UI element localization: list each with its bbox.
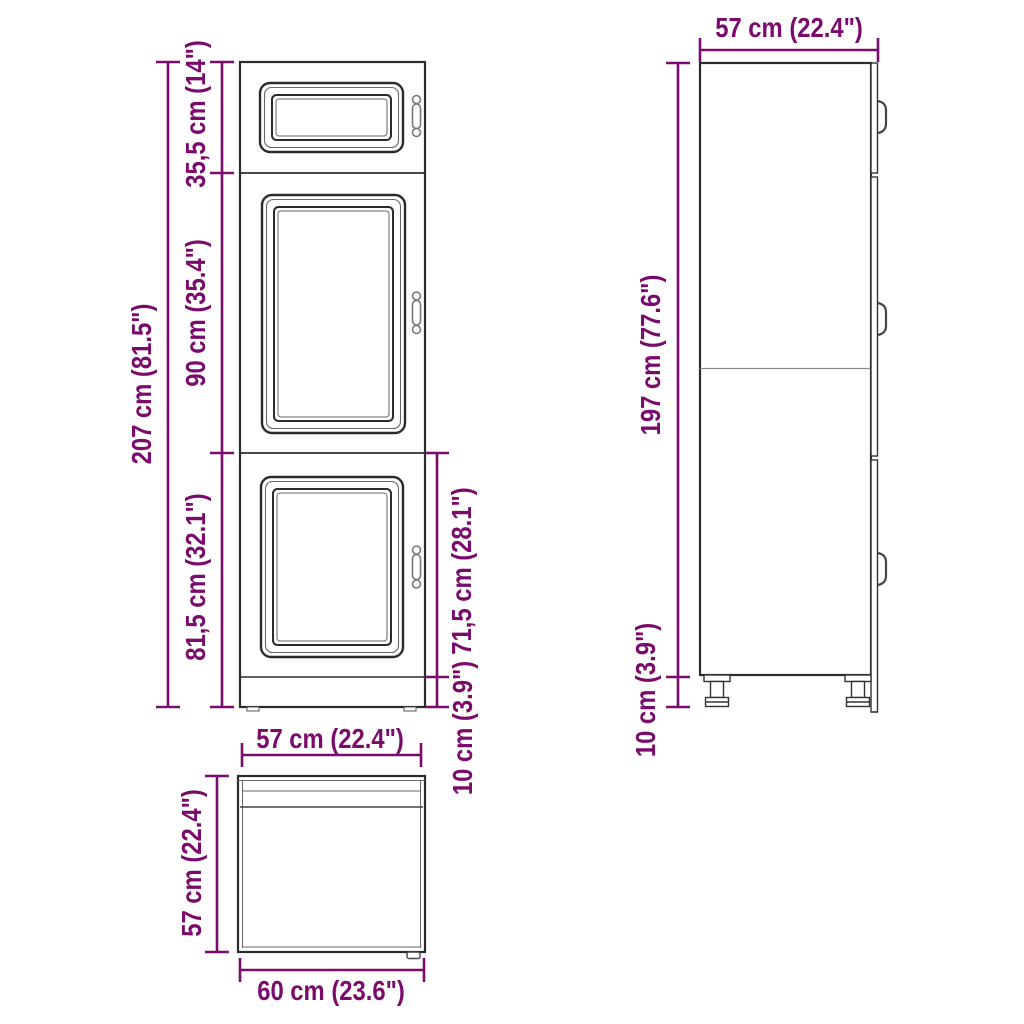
dim-label-front-bottom-section: 81,5 cm (32.1") [182,493,210,660]
dim-side-height-line [666,63,690,707]
dim-label-front-plinth: 10 cm (3.9") [449,661,477,795]
dim-label-front-width: 57 cm (22.4") [256,725,404,753]
front-left-foot [247,707,259,711]
side-back-foot [704,675,730,707]
front-bottom-door-handle [413,546,421,588]
front-cabinet-body [240,62,425,707]
side-door-handles [878,101,887,585]
dim-label-front-top-section: 35,5 cm (14") [182,40,210,188]
front-view-drawing [240,62,425,711]
side-front-foot [845,675,871,707]
dim-top-depth-line [205,776,229,952]
dim-label-top-total-depth: 60 cm (23.6") [257,977,405,1005]
dim-front-sections-line [210,62,234,707]
side-adjustable-feet [704,675,871,707]
side-top-handle [878,101,887,133]
side-middle-handle [878,303,887,335]
dim-front-total-height-line [156,62,180,707]
front-top-door-handle [413,96,421,137]
dimension-diagram: 207 cm (81.5") 35,5 cm (14") 90 cm (35.4… [0,0,1024,1024]
top-view-outline [238,776,425,952]
side-view-drawing [700,63,886,712]
cabinet-line-drawing [0,0,1024,1024]
dim-label-top-depth: 57 cm (22.4") [178,789,206,937]
dim-label-side-legs: 10 cm (3.9") [632,623,660,757]
dim-label-side-height: 197 cm (77.6") [637,275,665,436]
side-bottom-handle [878,553,887,585]
front-right-foot [404,707,416,711]
dim-label-front-total-height: 207 cm (81.5") [128,304,156,465]
top-view-handle [407,952,420,959]
dim-label-front-middle-section: 90 cm (35.4") [182,239,210,387]
side-door-front-edge [871,63,878,712]
front-middle-door-handle [413,292,421,334]
top-view-drawing [238,776,425,959]
dim-label-front-bottom-door: 71,5 cm (28.1") [448,487,476,654]
dim-label-side-depth: 57 cm (22.4") [715,14,863,42]
